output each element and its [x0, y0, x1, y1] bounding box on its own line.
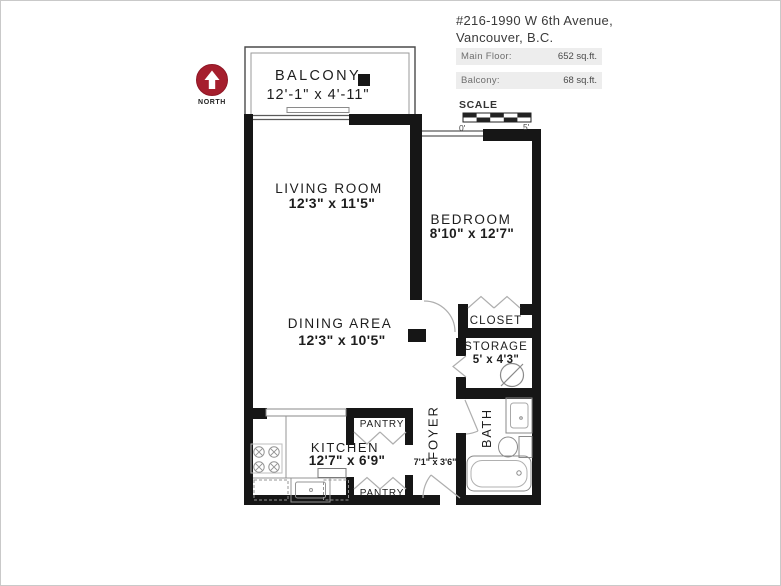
north-label: NORTH	[187, 99, 237, 106]
closet-label: CLOSET	[456, 315, 536, 327]
balcony-dims: 12'-1" x 4'-11"	[238, 87, 398, 103]
bathtub-icon	[467, 456, 531, 491]
wall	[244, 114, 253, 505]
kitchen-sink-icon	[291, 478, 330, 502]
toilet-icon	[499, 437, 533, 458]
kitchen-counter-top	[266, 409, 346, 416]
bath-fixtures	[467, 398, 532, 491]
scale-bar	[463, 113, 531, 122]
bedroom-label: BEDROOM	[401, 212, 541, 227]
counter-appliance	[318, 469, 346, 478]
storage-dims: 5' x 4'3"	[456, 354, 536, 366]
scale-start-label: 0'	[459, 123, 465, 133]
area-label: Balcony:	[461, 75, 500, 86]
wall	[458, 328, 532, 338]
area-value: 68 sq.ft.	[563, 75, 597, 86]
wall	[520, 304, 532, 315]
area-row-balcony: Balcony: 68 sq.ft.	[456, 72, 602, 89]
bedroom-dims: 8'10" x 12'7"	[401, 226, 543, 241]
closet-bifold-doors	[468, 297, 520, 309]
area-row-main-floor: Main Floor: 652 sq.ft.	[456, 48, 602, 65]
floor-plan-page: #216-1990 W 6th Avenue, Vancouver, B.C. …	[0, 0, 781, 586]
wall	[483, 129, 541, 141]
living-room-label: LIVING ROOM	[249, 181, 409, 196]
water-tank-icon	[501, 364, 524, 387]
wall	[456, 388, 532, 399]
wall	[456, 433, 466, 505]
bedroom-window	[422, 131, 483, 136]
living-room-dims: 12'3" x 11'5"	[249, 195, 415, 211]
pantry-bottom-label: PANTRY	[352, 488, 412, 499]
storage-label: STORAGE	[456, 341, 536, 353]
wall	[349, 114, 413, 125]
area-value: 652 sq.ft.	[558, 51, 597, 62]
wall	[253, 408, 267, 419]
bath-label: BATH	[480, 398, 494, 458]
wall	[346, 408, 413, 418]
scale-end-label: 5'	[523, 122, 529, 132]
property-address: #216-1990 W 6th Avenue, Vancouver, B.C.	[456, 13, 613, 46]
dining-area-dims: 12'3" x 10'5"	[260, 332, 424, 348]
address-line1: #216-1990 W 6th Avenue,	[456, 13, 613, 30]
scale-title: SCALE	[459, 99, 498, 111]
area-label: Main Floor:	[461, 51, 512, 62]
address-line2: Vancouver, B.C.	[456, 30, 613, 47]
foyer-dims: 7'1" x 3'6"	[395, 457, 475, 467]
dining-area-label: DINING AREA	[260, 316, 420, 331]
entry-door	[423, 475, 460, 498]
balcony-label: BALCONY	[238, 68, 398, 84]
sliding-door	[287, 108, 349, 113]
bath-door	[465, 400, 478, 434]
pantry-top-label: PANTRY	[352, 419, 412, 430]
bedroom-door-arc	[424, 301, 455, 332]
wall	[458, 495, 541, 505]
bath-sink-icon	[506, 398, 532, 433]
living-room-window	[253, 116, 349, 120]
north-arrow-icon	[197, 65, 228, 96]
